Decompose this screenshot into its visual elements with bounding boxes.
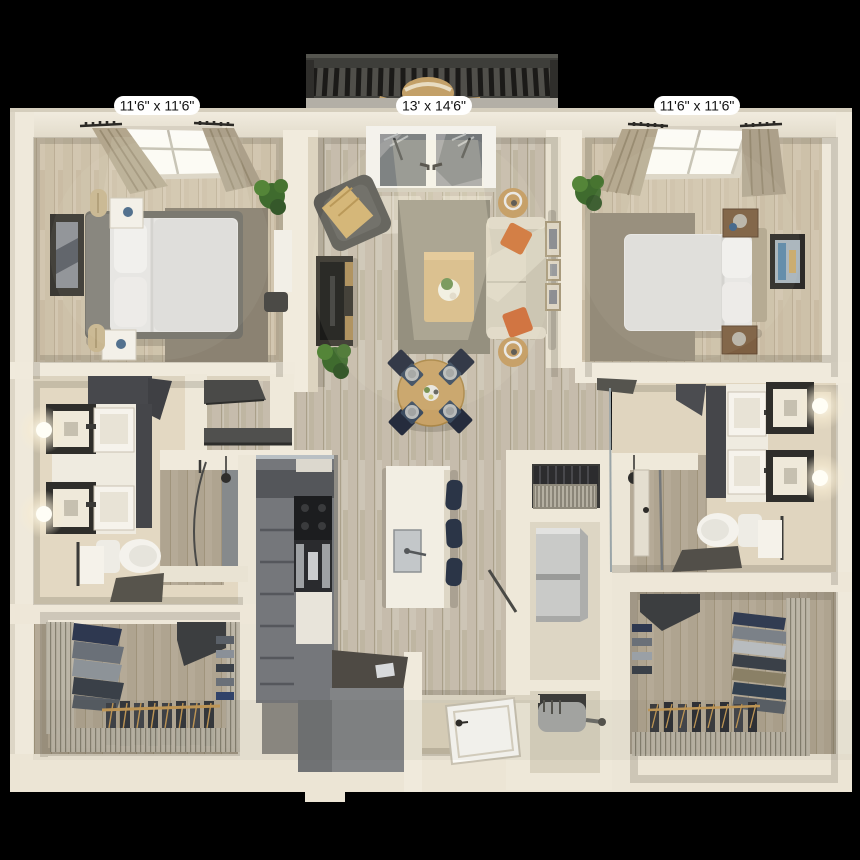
svg-text:11'6" x 11'6": 11'6" x 11'6" [660, 98, 735, 114]
svg-text:11'6" x 11'6": 11'6" x 11'6" [120, 98, 195, 114]
svg-text:13' x 14'6": 13' x 14'6" [402, 98, 466, 114]
